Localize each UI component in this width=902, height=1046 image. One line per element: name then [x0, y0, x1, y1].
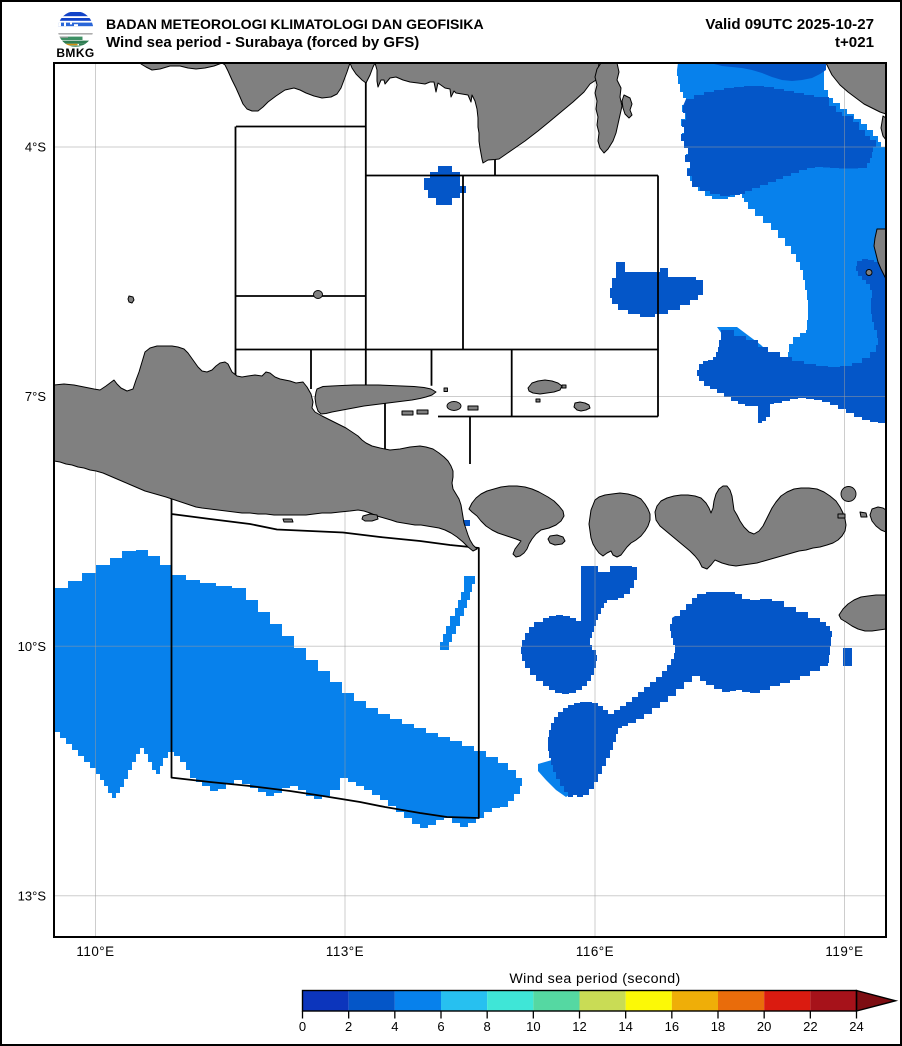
svg-text:0: 0	[299, 1019, 306, 1034]
svg-text:Wind sea period (second): Wind sea period (second)	[509, 971, 680, 987]
svg-text:12: 12	[572, 1019, 586, 1034]
svg-text:20: 20	[757, 1019, 771, 1034]
svg-text:Wind sea period - Surabaya (fo: Wind sea period - Surabaya (forced by GF…	[106, 34, 419, 51]
svg-text:4: 4	[391, 1019, 398, 1034]
svg-text:2: 2	[345, 1019, 352, 1034]
svg-text:10°S: 10°S	[18, 639, 47, 654]
svg-text:BMKG: BMKG	[56, 46, 94, 60]
svg-text:119°E: 119°E	[825, 944, 863, 959]
svg-text:4°S: 4°S	[25, 140, 46, 155]
svg-text:Valid 09UTC 2025-10-27: Valid 09UTC 2025-10-27	[705, 16, 874, 33]
svg-text:110°E: 110°E	[76, 944, 114, 959]
svg-text:10: 10	[526, 1019, 540, 1034]
svg-text:7°S: 7°S	[25, 389, 46, 404]
svg-text:6: 6	[437, 1019, 444, 1034]
svg-text:18: 18	[711, 1019, 725, 1034]
svg-text:16: 16	[665, 1019, 679, 1034]
svg-text:116°E: 116°E	[576, 944, 614, 959]
svg-text:13°S: 13°S	[18, 888, 47, 903]
svg-text:BADAN METEOROLOGI KLIMATOLOGI: BADAN METEOROLOGI KLIMATOLOGI DAN GEOFIS…	[106, 16, 484, 32]
svg-text:14: 14	[618, 1019, 632, 1034]
svg-text:22: 22	[803, 1019, 817, 1034]
svg-text:8: 8	[484, 1019, 491, 1034]
svg-text:24: 24	[849, 1019, 863, 1034]
svg-text:113°E: 113°E	[326, 944, 364, 959]
svg-text:t+021: t+021	[835, 34, 874, 51]
